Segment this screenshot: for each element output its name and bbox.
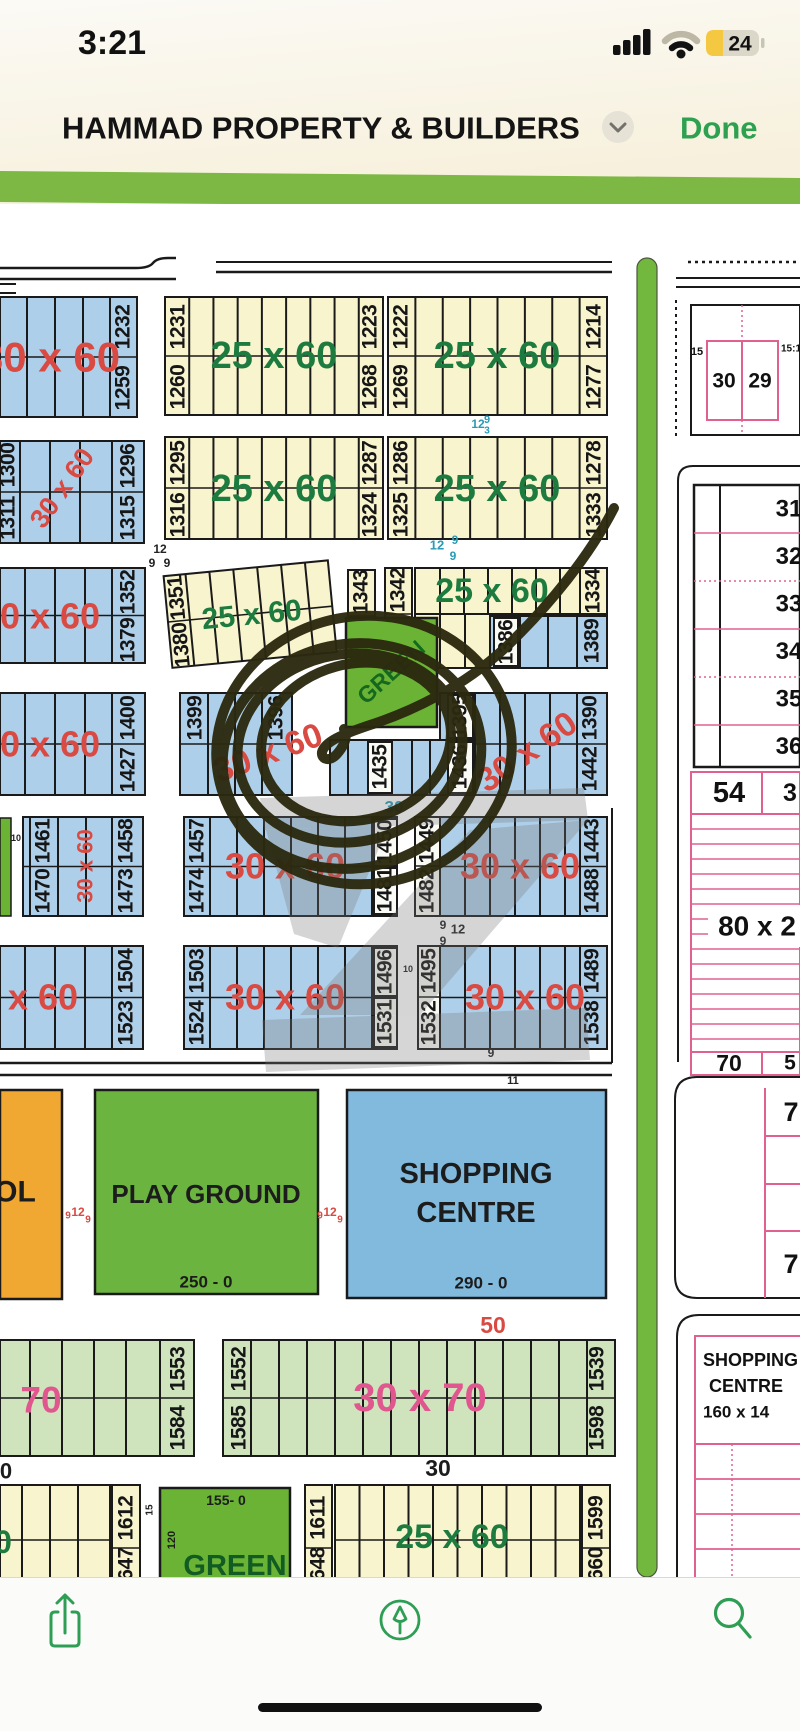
svg-text:1523: 1523: [115, 1001, 138, 1046]
svg-text:30 x 60: 30 x 60: [0, 724, 100, 765]
svg-text:1399: 1399: [184, 696, 207, 741]
svg-text:1389: 1389: [581, 619, 604, 664]
svg-text:1552: 1552: [228, 1347, 251, 1392]
svg-text:12: 12: [471, 417, 485, 431]
svg-text:70: 70: [716, 1050, 742, 1076]
svg-text:15:1: 15:1: [781, 344, 800, 355]
svg-text:1612: 1612: [115, 1496, 138, 1541]
svg-text:1259: 1259: [112, 366, 135, 411]
svg-text:5: 5: [784, 1052, 796, 1075]
svg-text:12: 12: [71, 1205, 85, 1219]
svg-text:9: 9: [85, 1215, 91, 1226]
svg-text:1311: 1311: [0, 495, 20, 539]
svg-text:1457: 1457: [186, 819, 209, 864]
svg-text:1400: 1400: [117, 696, 140, 741]
svg-text:0: 0: [0, 1524, 12, 1560]
svg-text:CENTRE: CENTRE: [709, 1376, 783, 1396]
svg-text:3:21: 3:21: [78, 24, 146, 62]
svg-text:33: 33: [776, 591, 800, 618]
svg-text:1503: 1503: [186, 949, 209, 994]
svg-text:0: 0: [0, 1459, 12, 1484]
svg-text:1315: 1315: [117, 495, 140, 541]
svg-text:120: 120: [166, 1531, 178, 1549]
svg-text:1286: 1286: [390, 441, 413, 486]
svg-text:1223: 1223: [359, 305, 382, 350]
svg-text:1324: 1324: [359, 492, 382, 538]
svg-text:1524: 1524: [186, 1000, 209, 1046]
svg-text:1316: 1316: [167, 493, 190, 538]
svg-text:1278: 1278: [583, 440, 606, 486]
svg-text:1474: 1474: [186, 868, 209, 914]
svg-text:1470: 1470: [32, 869, 55, 914]
svg-text:1351: 1351: [163, 574, 190, 622]
svg-text:1268: 1268: [359, 364, 382, 410]
svg-text:160 x 14: 160 x 14: [703, 1403, 770, 1422]
svg-text:30 x 60: 30 x 60: [0, 596, 100, 637]
svg-text:25 x 60: 25 x 60: [435, 572, 548, 610]
svg-text:1295: 1295: [167, 440, 190, 486]
svg-text:25 x 60: 25 x 60: [434, 335, 561, 377]
svg-text:1222: 1222: [390, 305, 413, 350]
svg-text:1504: 1504: [115, 948, 138, 994]
svg-text:1458: 1458: [115, 818, 138, 864]
svg-text:1352: 1352: [117, 570, 140, 615]
svg-text:36: 36: [776, 733, 800, 760]
svg-text:155- 0: 155- 0: [206, 1492, 246, 1508]
svg-text:250 - 0: 250 - 0: [180, 1273, 233, 1292]
svg-text:1231: 1231: [167, 304, 190, 350]
svg-text:31: 31: [776, 496, 800, 523]
svg-text:PLAY GROUND: PLAY GROUND: [111, 1179, 300, 1209]
svg-text:25 x 60: 25 x 60: [395, 1518, 508, 1556]
svg-text:30 x 70: 30 x 70: [353, 1376, 486, 1420]
svg-text:1553: 1553: [167, 1347, 190, 1392]
svg-text:9: 9: [450, 549, 457, 563]
svg-text:1435: 1435: [369, 744, 392, 790]
svg-text:30 x 60: 30 x 60: [73, 829, 98, 902]
svg-text:9: 9: [452, 533, 459, 547]
svg-text:7: 7: [783, 1249, 798, 1279]
svg-text:7: 7: [783, 1097, 798, 1127]
svg-text:29: 29: [748, 370, 771, 393]
svg-text:1488: 1488: [581, 868, 604, 914]
svg-text:15: 15: [691, 346, 703, 358]
svg-text:1343: 1343: [350, 570, 373, 615]
svg-text:24: 24: [728, 33, 752, 56]
svg-text:12: 12: [153, 542, 167, 556]
svg-text:9: 9: [164, 556, 171, 570]
svg-text:1489: 1489: [581, 949, 604, 994]
svg-text:290 - 0: 290 - 0: [455, 1274, 508, 1293]
svg-text:1325: 1325: [390, 492, 413, 538]
svg-text:1342: 1342: [387, 568, 410, 613]
svg-text:SHOPPING: SHOPPING: [703, 1350, 798, 1370]
svg-text:OL: OL: [0, 1176, 36, 1209]
svg-text:11: 11: [507, 1075, 519, 1087]
svg-text:1611: 1611: [307, 1495, 330, 1539]
svg-text:30: 30: [712, 370, 735, 393]
svg-text:1481: 1481: [374, 867, 397, 913]
svg-text:32: 32: [776, 543, 800, 570]
svg-text:1473: 1473: [115, 869, 138, 914]
svg-text:70: 70: [20, 1380, 61, 1421]
svg-text:1443: 1443: [581, 819, 604, 864]
svg-text:1277: 1277: [583, 365, 606, 410]
svg-text:Done: Done: [680, 111, 758, 146]
svg-text:1379: 1379: [117, 618, 140, 663]
svg-text:1427: 1427: [117, 748, 140, 793]
svg-text:9: 9: [317, 1211, 323, 1222]
svg-text:25 x 60: 25 x 60: [211, 335, 338, 377]
svg-text:54: 54: [713, 777, 745, 809]
svg-text:1598: 1598: [586, 1405, 609, 1451]
svg-text:1380: 1380: [168, 621, 195, 668]
svg-text:1296: 1296: [117, 444, 140, 489]
svg-text:30: 30: [425, 1455, 451, 1481]
svg-text:647: 647: [115, 1547, 138, 1581]
svg-text:34: 34: [776, 638, 800, 665]
svg-text:1442: 1442: [579, 747, 602, 792]
svg-text:1599: 1599: [585, 1496, 608, 1541]
svg-text:30 x 60: 30 x 60: [0, 334, 120, 381]
svg-text:12: 12: [323, 1205, 337, 1219]
svg-text:3: 3: [783, 779, 797, 807]
svg-text:SHOPPING: SHOPPING: [399, 1158, 552, 1190]
svg-text:15: 15: [145, 1504, 156, 1516]
svg-text:80 x 2: 80 x 2: [718, 911, 796, 942]
svg-text:1585: 1585: [228, 1405, 251, 1451]
svg-text:10: 10: [11, 833, 21, 843]
svg-text:25 x 60: 25 x 60: [434, 468, 561, 510]
svg-text:12: 12: [430, 538, 444, 553]
svg-text:1232: 1232: [112, 305, 135, 350]
svg-text:HAMMAD PROPERTY & BUILDERS: HAMMAD PROPERTY & BUILDERS: [62, 111, 580, 146]
svg-text:9: 9: [149, 556, 156, 570]
svg-text:1214: 1214: [583, 304, 606, 350]
svg-text:648: 648: [307, 1546, 330, 1580]
svg-text:9: 9: [337, 1215, 343, 1226]
svg-text:30 x 60: 30 x 60: [0, 977, 78, 1018]
svg-text:25 x 60: 25 x 60: [211, 468, 338, 510]
svg-text:1269: 1269: [390, 365, 413, 410]
svg-text:1260: 1260: [167, 365, 190, 410]
svg-text:1461: 1461: [32, 818, 55, 864]
svg-text:50: 50: [480, 1312, 506, 1338]
svg-text:1539: 1539: [586, 1347, 609, 1392]
svg-text:9: 9: [484, 414, 490, 426]
svg-text:35: 35: [776, 686, 800, 713]
svg-text:9: 9: [65, 1211, 71, 1222]
svg-text:1300: 1300: [0, 443, 20, 488]
svg-text:1584: 1584: [167, 1405, 190, 1451]
svg-text:660: 660: [585, 1547, 608, 1581]
svg-text:1334: 1334: [582, 568, 605, 614]
svg-text:1287: 1287: [359, 441, 382, 486]
svg-text:CENTRE: CENTRE: [416, 1197, 535, 1229]
svg-text:3: 3: [484, 426, 490, 437]
